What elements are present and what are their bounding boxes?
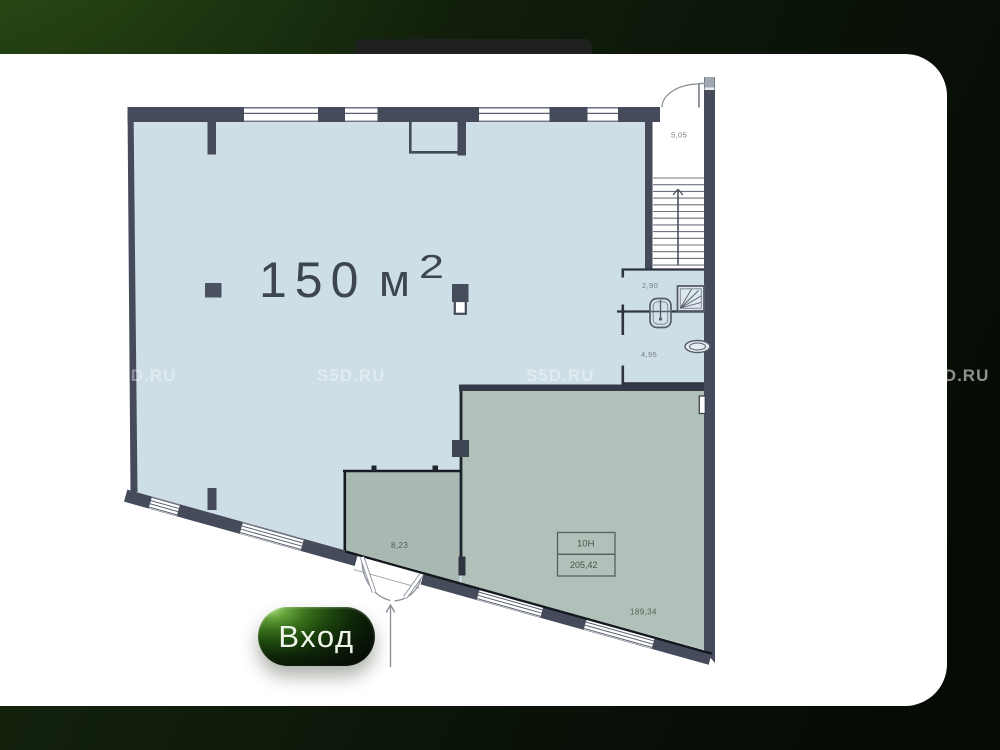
svg-text:S5D.RU: S5D.RU: [317, 366, 385, 385]
svg-text:8,23: 8,23: [391, 541, 408, 550]
svg-text:205,42: 205,42: [570, 560, 598, 570]
svg-text:4,95: 4,95: [641, 350, 657, 359]
svg-text:150: 150: [259, 252, 366, 308]
svg-text:S5D.RU: S5D.RU: [735, 366, 803, 385]
svg-text:S5D.RU: S5D.RU: [526, 366, 594, 385]
svg-text:2: 2: [419, 248, 444, 285]
svg-text:5,05: 5,05: [671, 131, 687, 140]
svg-text:м: м: [379, 255, 410, 306]
svg-text:2,90: 2,90: [642, 281, 658, 290]
svg-text:10Н: 10Н: [577, 539, 595, 550]
svg-text:S5D.RU: S5D.RU: [108, 366, 176, 385]
svg-text:S5D.RU: S5D.RU: [921, 366, 989, 385]
svg-text:189,34: 189,34: [630, 608, 657, 617]
